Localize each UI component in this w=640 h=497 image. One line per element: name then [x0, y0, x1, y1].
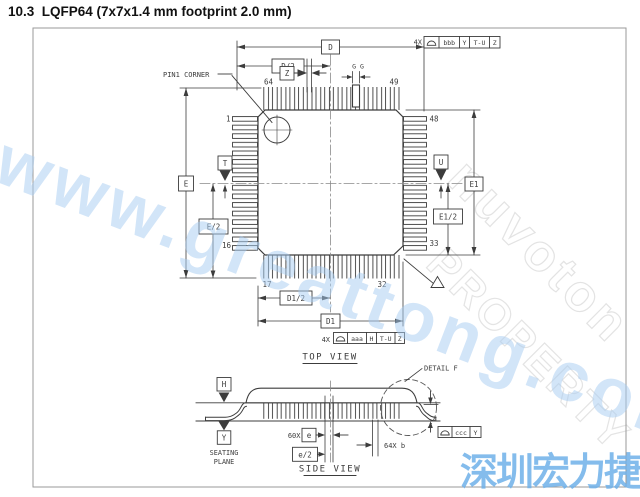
pin-number-48: 48	[430, 115, 440, 124]
pin1-corner-label: PIN1 CORNER	[163, 71, 210, 79]
note-triangle-icon	[431, 277, 444, 288]
pin-number-16: 16	[222, 241, 232, 250]
fcf-bottom-qty: 4X	[322, 336, 331, 344]
pitch-qty-label: 60X	[288, 432, 301, 440]
seating-plane-label-2: PLANE	[214, 458, 234, 466]
fcf-bottom: 4X aaa H T-U Z	[322, 333, 405, 345]
seating-plane-label-1: SEATING	[210, 449, 239, 457]
dim-label-GG: G G	[352, 63, 364, 71]
pin-number-32: 32	[377, 280, 386, 289]
dim-label-E-half: E/2	[207, 222, 221, 231]
datum-label-U: U	[439, 158, 444, 167]
gg-reference-pin	[353, 85, 360, 107]
fcf-top-ref3: Z	[493, 39, 497, 47]
side-body	[246, 388, 417, 403]
fcf-bottom-ref1: H	[370, 335, 374, 343]
dim-label-D: D	[328, 43, 333, 52]
dim-label-D1-half: D1/2	[287, 294, 305, 303]
fcf-side: ccc Y	[438, 427, 481, 438]
pin-number-33: 33	[430, 239, 439, 248]
fcf-top-qty: 4X	[414, 39, 423, 47]
pin-number-17: 17	[262, 280, 271, 289]
fcf-side-tol: ccc	[455, 429, 467, 437]
side-leads	[262, 403, 401, 419]
dim-label-E1-half: E1/2	[439, 212, 457, 221]
fcf-bottom-ref3: Z	[398, 335, 402, 343]
pins-bottom	[262, 255, 401, 279]
datum-label-T: T	[223, 159, 228, 168]
side-view: DETAIL F H Y SEATING PLANE 60X e e/2	[196, 365, 481, 476]
side-view-label: SIDE VIEW	[299, 465, 361, 475]
datum-triangle-T-icon	[220, 171, 231, 182]
pin-number-64: 64	[264, 78, 274, 87]
dim-label-e: e	[307, 431, 312, 440]
dim-label-E1: E1	[469, 180, 478, 189]
datum-triangle-Y-icon	[219, 422, 230, 431]
note-leader-line	[404, 259, 434, 284]
datum-triangle-U-icon	[436, 170, 447, 181]
datum-label-Y: Y	[222, 434, 227, 443]
fcf-top-tol: bbb	[443, 39, 455, 47]
top-view: PIN1 CORNER D D/2 Z	[163, 37, 500, 364]
dim-label-E: E	[184, 179, 189, 188]
fcf-top: 4X bbb Y T-U Z	[414, 37, 500, 49]
detail-f-label: DETAIL F	[424, 365, 458, 373]
dim-label-D1: D1	[326, 317, 335, 326]
top-view-label: TOP VIEW	[302, 353, 357, 363]
fcf-side-ref1: Y	[474, 429, 478, 437]
fcf-top-ref2: T-U	[474, 39, 486, 47]
pin-number-1: 1	[226, 115, 231, 124]
fcf-top-ref1: Y	[463, 39, 467, 47]
dim-label-Z: Z	[285, 69, 290, 78]
pin-number-49: 49	[389, 78, 398, 87]
dim-label-64x-b: 64X b	[384, 442, 405, 450]
left-gull-lead	[206, 403, 247, 418]
pins-top	[262, 87, 401, 110]
dim-label-e-half: e/2	[298, 450, 312, 459]
datum-label-H: H	[222, 380, 227, 389]
package-outline-drawing: PIN1 CORNER D D/2 Z	[0, 0, 640, 497]
datasheet-page: 10.3 LQFP64 (7x7x1.4 mm footprint 2.0 mm…	[0, 0, 640, 497]
fcf-bottom-ref2: T-U	[380, 335, 392, 343]
fcf-bottom-tol: aaa	[351, 335, 363, 343]
datum-triangle-H-icon	[219, 393, 230, 403]
